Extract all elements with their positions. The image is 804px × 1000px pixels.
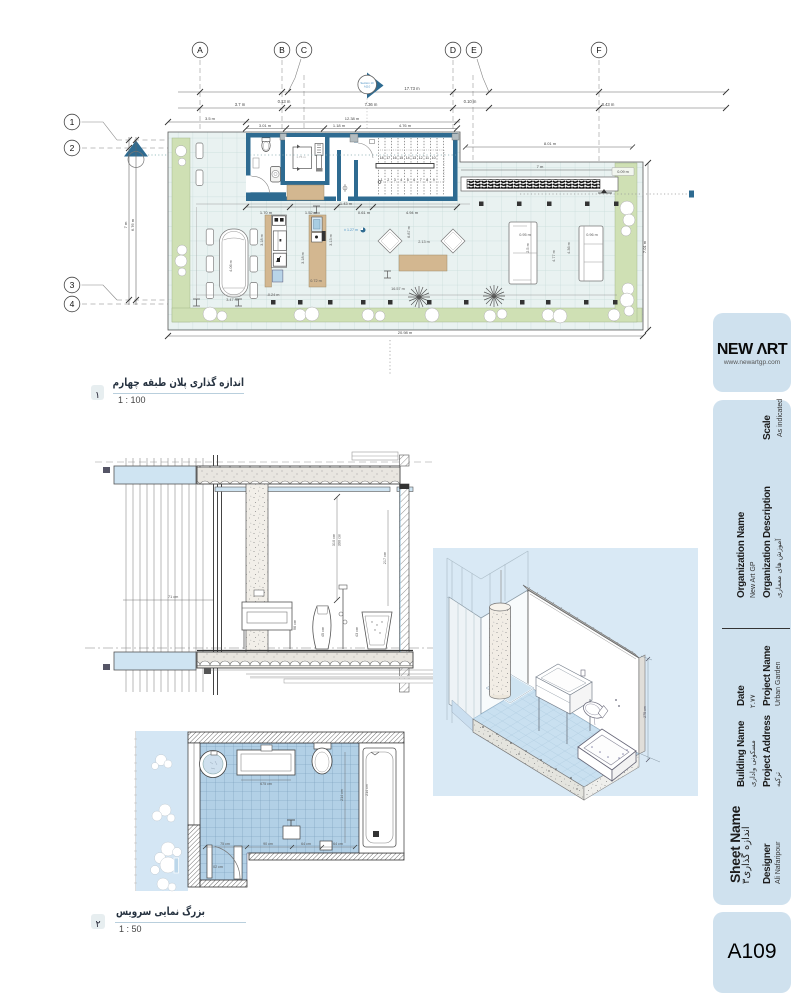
svg-text:214 cm: 214 cm [365, 784, 369, 796]
svg-text:D: D [450, 45, 456, 55]
svg-text:3.47 m: 3.47 m [226, 298, 238, 302]
svg-text:4.77 m: 4.77 m [552, 250, 556, 262]
svg-text:16: 16 [393, 156, 397, 160]
svg-text:0.61 m: 0.61 m [358, 210, 371, 215]
svg-text:4: 4 [400, 178, 402, 182]
svg-text:0.72 m: 0.72 m [310, 279, 322, 283]
svg-text:0.96 m: 0.96 m [586, 233, 598, 237]
svg-text:1.52 m: 1.52 m [305, 210, 318, 215]
svg-text:2: 2 [387, 178, 389, 182]
svg-text:13: 13 [412, 156, 416, 160]
svg-text:0.10 m: 0.10 m [464, 99, 477, 104]
svg-text:02 cm: 02 cm [213, 865, 223, 869]
svg-text:0.09 m: 0.09 m [617, 170, 629, 174]
svg-text:1.75 m: 1.75 m [296, 155, 306, 159]
svg-text:5: 5 [407, 178, 409, 182]
svg-text:310 cm: 310 cm [332, 534, 336, 546]
svg-text:217 cm: 217 cm [383, 552, 387, 564]
svg-text:A: A [197, 45, 203, 55]
svg-text:64 cm: 64 cm [333, 842, 343, 846]
svg-text:7 m: 7 m [537, 164, 544, 169]
svg-text:675 cm: 675 cm [260, 782, 272, 786]
svg-text:64 cm: 64 cm [301, 842, 311, 846]
svg-text:3.18 m: 3.18 m [260, 234, 264, 246]
svg-text:15: 15 [399, 156, 403, 160]
svg-text:2: 2 [70, 143, 75, 153]
svg-text:90 cm: 90 cm [263, 842, 273, 846]
svg-text:9: 9 [433, 178, 435, 182]
svg-text:6.76 m: 6.76 m [130, 218, 135, 231]
svg-text:75 cm: 75 cm [220, 842, 230, 846]
svg-text:0.95 m: 0.95 m [519, 233, 531, 237]
svg-text:E: E [471, 45, 477, 55]
svg-text:A110: A110 [364, 85, 371, 89]
svg-text:F: F [596, 45, 601, 55]
svg-text:7 m: 7 m [123, 221, 128, 228]
svg-text:8.01 m: 8.01 m [544, 141, 557, 146]
svg-text:6.87 m: 6.87 m [407, 226, 411, 238]
svg-text:B: B [279, 45, 285, 55]
svg-text:71 cm: 71 cm [168, 595, 178, 599]
svg-text:1.18 m: 1.18 m [333, 123, 346, 128]
svg-text:6: 6 [413, 178, 415, 182]
svg-text:-0.24 m: -0.24 m [267, 293, 280, 297]
svg-text:8.43 m: 8.43 m [602, 102, 615, 107]
svg-text:11: 11 [425, 156, 429, 160]
svg-text:45 cm: 45 cm [321, 627, 325, 637]
svg-text:17: 17 [386, 156, 390, 160]
svg-text:3.18 m: 3.18 m [301, 252, 305, 264]
svg-text:2.5 m: 2.5 m [526, 243, 530, 253]
svg-text:1: 1 [70, 117, 75, 127]
svg-text:4.06 m: 4.06 m [229, 260, 233, 272]
svg-text:8: 8 [426, 178, 428, 182]
svg-text:14: 14 [406, 156, 410, 160]
svg-text:3.7 m: 3.7 m [235, 102, 246, 107]
svg-text:3.5 m: 3.5 m [205, 116, 216, 121]
svg-text:C: C [301, 45, 307, 55]
svg-text:12: 12 [419, 156, 423, 160]
svg-text:7.01 m: 7.01 m [642, 240, 647, 253]
svg-text:1.43 m: 1.43 m [340, 201, 353, 206]
svg-text:18: 18 [380, 156, 384, 160]
svg-text:17.73 m: 17.73 m [404, 86, 420, 91]
svg-text:12.38 m: 12.38 m [345, 116, 360, 121]
svg-text:16.57 m: 16.57 m [391, 287, 405, 291]
svg-text:10: 10 [432, 156, 436, 160]
svg-text:7: 7 [420, 178, 422, 182]
svg-text:2.13 m: 2.13 m [418, 240, 430, 244]
svg-text:214 cm: 214 cm [340, 789, 344, 801]
svg-text:4: 4 [70, 299, 75, 309]
svg-text:0.13 m: 0.13 m [278, 99, 291, 104]
svg-text:275 cm: 275 cm [643, 706, 647, 718]
svg-text:4.94 m: 4.94 m [406, 210, 419, 215]
svg-text:20.98 m: 20.98 m [398, 330, 413, 335]
svg-text:3: 3 [70, 280, 75, 290]
svg-text:1.70 m: 1.70 m [260, 210, 273, 215]
svg-text:4.76 m: 4.76 m [399, 123, 412, 128]
svg-text:3: 3 [394, 178, 396, 182]
svg-text:43 cm: 43 cm [355, 627, 359, 637]
svg-text:3.13 m: 3.13 m [329, 234, 333, 246]
svg-text:96 cm: 96 cm [293, 620, 297, 630]
svg-text:3.01 m: 3.01 m [259, 123, 272, 128]
svg-text:7.36 m: 7.36 m [365, 102, 378, 107]
svg-text:390 cm: 390 cm [338, 534, 342, 546]
svg-text:4.36 m: 4.36 m [567, 242, 571, 254]
svg-text:± 1.27 m: ± 1.27 m [344, 228, 358, 232]
